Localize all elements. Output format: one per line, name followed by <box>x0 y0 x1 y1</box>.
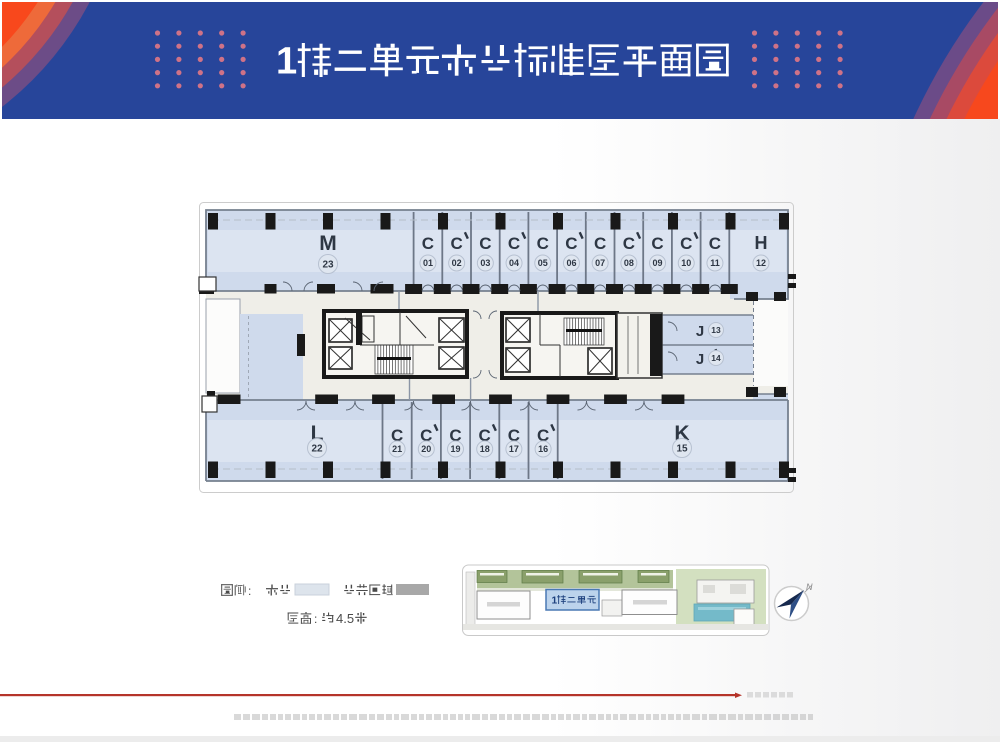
svg-text:05: 05 <box>538 258 548 268</box>
svg-text:C: C <box>537 234 549 253</box>
svg-text:C: C <box>651 234 663 253</box>
svg-text:06: 06 <box>566 258 576 268</box>
svg-text:09: 09 <box>653 258 663 268</box>
svg-text:C: C <box>422 234 434 253</box>
svg-text:10: 10 <box>681 258 691 268</box>
svg-text:11: 11 <box>710 258 720 268</box>
svg-text:C: C <box>451 234 463 253</box>
svg-text:H: H <box>755 233 768 253</box>
svg-text:04: 04 <box>509 258 519 268</box>
svg-text:C: C <box>565 234 577 253</box>
svg-text:22: 22 <box>311 444 323 455</box>
svg-text:C: C <box>479 234 491 253</box>
svg-text:1: 1 <box>276 41 297 83</box>
svg-text:03: 03 <box>480 258 490 268</box>
svg-text:J: J <box>696 323 704 340</box>
svg-text:4.5: 4.5 <box>336 611 354 626</box>
svg-text:14: 14 <box>711 353 721 363</box>
svg-text:20: 20 <box>421 444 431 454</box>
svg-text:21: 21 <box>392 444 402 454</box>
svg-text:C: C <box>680 234 692 253</box>
svg-text:18: 18 <box>480 444 490 454</box>
svg-text:1: 1 <box>552 595 558 606</box>
svg-text:C: C <box>709 234 721 253</box>
svg-text:01: 01 <box>423 258 433 268</box>
svg-text:08: 08 <box>624 258 634 268</box>
svg-text:12: 12 <box>756 258 766 268</box>
svg-text:23: 23 <box>322 260 334 271</box>
svg-text:17: 17 <box>509 444 519 454</box>
svg-text:J: J <box>696 351 704 368</box>
svg-text:M: M <box>319 232 337 255</box>
svg-text::: : <box>314 612 317 626</box>
svg-text:19: 19 <box>450 444 460 454</box>
svg-text:13: 13 <box>711 325 721 335</box>
svg-text::: : <box>248 584 251 598</box>
svg-text:02: 02 <box>452 258 462 268</box>
svg-text:C: C <box>623 234 635 253</box>
svg-text:07: 07 <box>595 258 605 268</box>
svg-text:C: C <box>594 234 606 253</box>
svg-text:15: 15 <box>676 444 688 455</box>
svg-text:16: 16 <box>538 444 548 454</box>
svg-text:C: C <box>508 234 520 253</box>
